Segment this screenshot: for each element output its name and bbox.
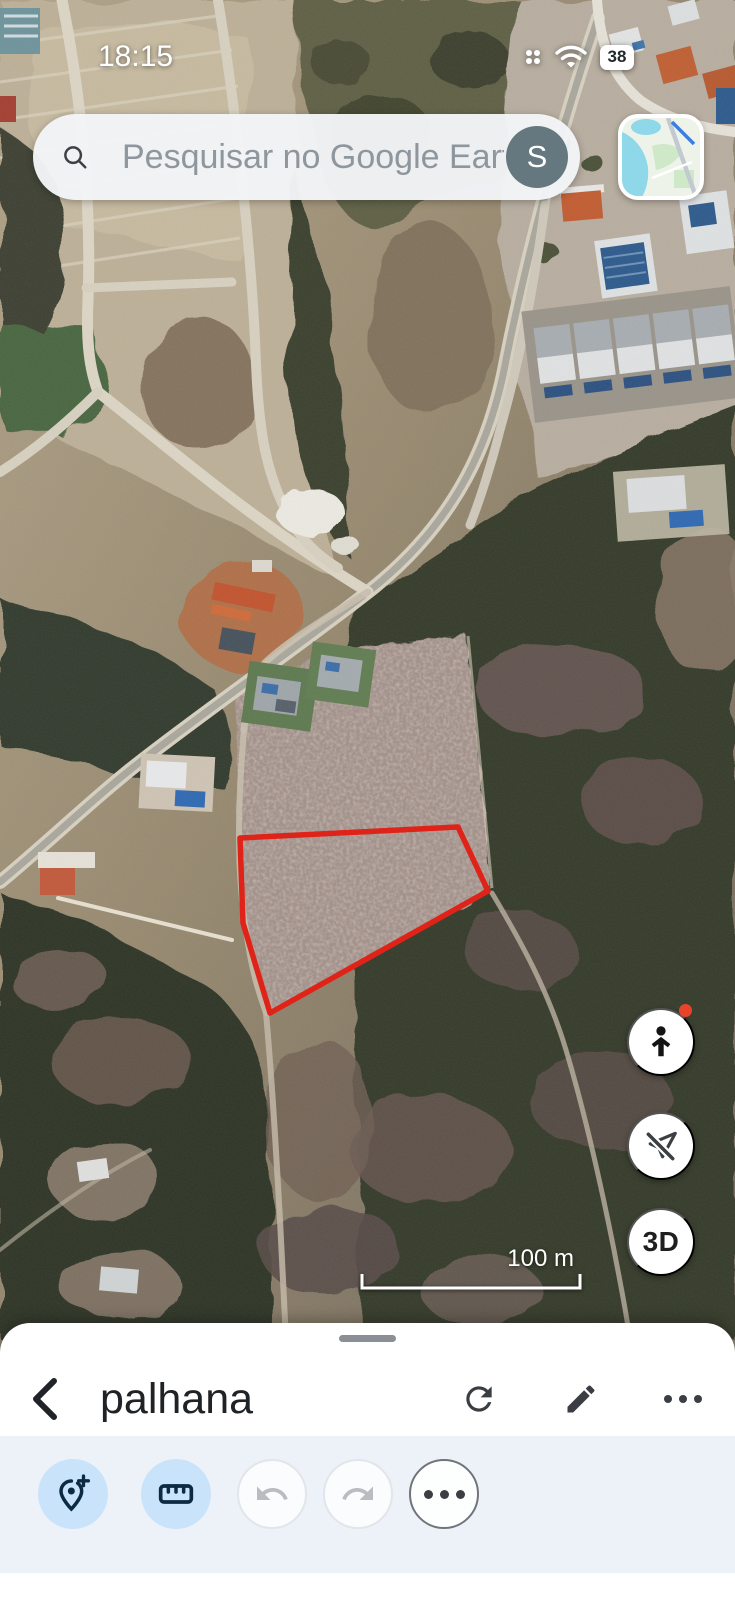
edit-button[interactable] (553, 1371, 609, 1427)
account-avatar[interactable]: S (506, 126, 568, 188)
edit-toolbar (0, 1436, 735, 1573)
avatar-letter: S (527, 139, 548, 175)
search-input[interactable] (120, 137, 506, 178)
threed-label: 3D (643, 1226, 680, 1258)
google-earth-screen: 18:15 38 S (0, 0, 735, 1600)
threed-button[interactable]: 3D (627, 1208, 695, 1276)
more-tools-button[interactable] (409, 1459, 479, 1529)
ruler-icon (156, 1474, 196, 1514)
pencil-icon (563, 1381, 599, 1417)
refresh-button[interactable] (451, 1371, 507, 1427)
back-button[interactable] (16, 1371, 72, 1427)
satellite-map (0, 0, 735, 1340)
undo-icon (254, 1476, 290, 1512)
battery-percent: 38 (608, 47, 627, 67)
redo-button[interactable] (323, 1459, 393, 1529)
search-bar[interactable]: S (33, 114, 580, 200)
redo-icon (340, 1476, 376, 1512)
add-placemark-button[interactable] (38, 1459, 108, 1529)
battery-indicator: 38 (600, 45, 634, 70)
flight-disabled-icon (642, 1127, 680, 1165)
search-icon (60, 142, 90, 172)
measure-button[interactable] (141, 1459, 211, 1529)
person-icon (643, 1024, 679, 1060)
status-icons: 38 (524, 44, 634, 70)
chevron-left-icon (29, 1376, 59, 1422)
more-button[interactable] (655, 1371, 711, 1427)
drag-handle[interactable] (339, 1335, 396, 1342)
notification-dot (679, 1004, 692, 1017)
map-layers-thumbnail[interactable] (618, 114, 704, 200)
status-time: 18:15 (98, 40, 173, 74)
map-canvas[interactable] (0, 0, 735, 1340)
flight-disabled-button[interactable] (627, 1112, 695, 1180)
wifi-icon (554, 44, 588, 70)
pegman-button[interactable] (627, 1008, 695, 1076)
app-grid-icon (524, 48, 542, 66)
place-title: palhana (100, 1375, 253, 1424)
undo-button[interactable] (237, 1459, 307, 1529)
ellipsis-icon (664, 1395, 702, 1403)
more-tools-ellipsis-icon (424, 1490, 465, 1499)
bottom-sheet: palhana (0, 1323, 735, 1600)
refresh-icon (460, 1380, 498, 1418)
mini-map-icon (622, 118, 701, 197)
map-pin-plus-icon (53, 1474, 93, 1514)
